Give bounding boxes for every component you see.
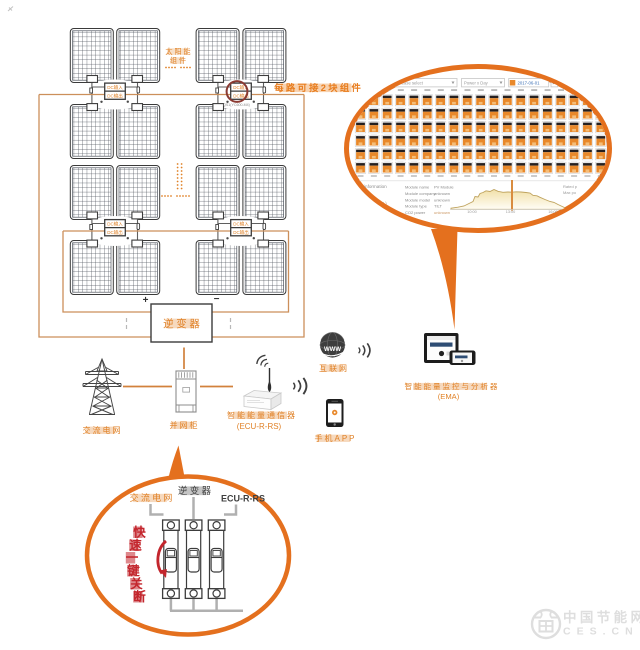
svg-text:(ECU-R-RS): (ECU-R-RS): [237, 422, 282, 431]
svg-text:组件: 组件: [170, 56, 188, 65]
svg-text:太阳能: 太阳能: [165, 47, 192, 56]
svg-text:2017-06-01: 2017-06-01: [518, 81, 541, 86]
svg-text:一: 一: [126, 551, 142, 565]
svg-text:逆变器: 逆变器: [178, 485, 214, 497]
svg-text:CES.CN: CES.CN: [563, 626, 639, 638]
svg-text:ECU-R-RS: ECU-R-RS: [221, 494, 265, 504]
svg-text:unknown: unknown: [434, 191, 450, 196]
svg-text:Power x Day: Power x Day: [464, 80, 489, 85]
svg-text:逆变器: 逆变器: [163, 317, 202, 330]
svg-text:unknown: unknown: [434, 210, 450, 215]
svg-text:Rated p: Rated p: [563, 184, 578, 189]
svg-text:智能能量通信器: 智能能量通信器: [227, 410, 297, 420]
svg-text:互联网: 互联网: [319, 364, 349, 373]
svg-text:13:00: 13:00: [506, 210, 516, 214]
svg-text:交流电网: 交流电网: [83, 425, 123, 435]
svg-text:QS1(YC600-M4): QS1(YC600-M4): [223, 103, 250, 107]
svg-text:unknown: unknown: [434, 197, 450, 202]
svg-text:−: −: [214, 294, 220, 305]
svg-text:快: 快: [133, 525, 149, 540]
svg-text:断: 断: [133, 589, 149, 604]
svg-text:Module model: Module model: [405, 197, 430, 202]
svg-text:手机APP: 手机APP: [314, 433, 356, 443]
svg-text:每路可接2块组件: 每路可接2块组件: [274, 82, 363, 93]
svg-text:中国节能网: 中国节能网: [563, 609, 640, 625]
svg-text:(EMA): (EMA): [438, 392, 460, 401]
svg-text:智能能量监控与分析器: 智能能量监控与分析器: [404, 381, 499, 391]
svg-text:Module type: Module type: [405, 204, 428, 209]
svg-text:Module company: Module company: [405, 191, 435, 196]
svg-text:CO2 power: CO2 power: [405, 210, 426, 215]
svg-text:PV Module: PV Module: [434, 185, 454, 190]
svg-text:+: +: [143, 295, 149, 306]
svg-text:关: 关: [130, 576, 146, 591]
svg-text:键: 键: [126, 563, 143, 578]
svg-text:Max po: Max po: [563, 190, 577, 195]
svg-text:Module name: Module name: [405, 185, 430, 190]
svg-text:交流电网: 交流电网: [130, 492, 175, 503]
svg-text:TILT: TILT: [434, 204, 442, 209]
svg-text:10:00: 10:00: [467, 210, 477, 214]
svg-text:information: information: [364, 184, 387, 189]
svg-text:并网柜: 并网柜: [170, 420, 200, 430]
svg-text:WWW: WWW: [324, 347, 341, 353]
